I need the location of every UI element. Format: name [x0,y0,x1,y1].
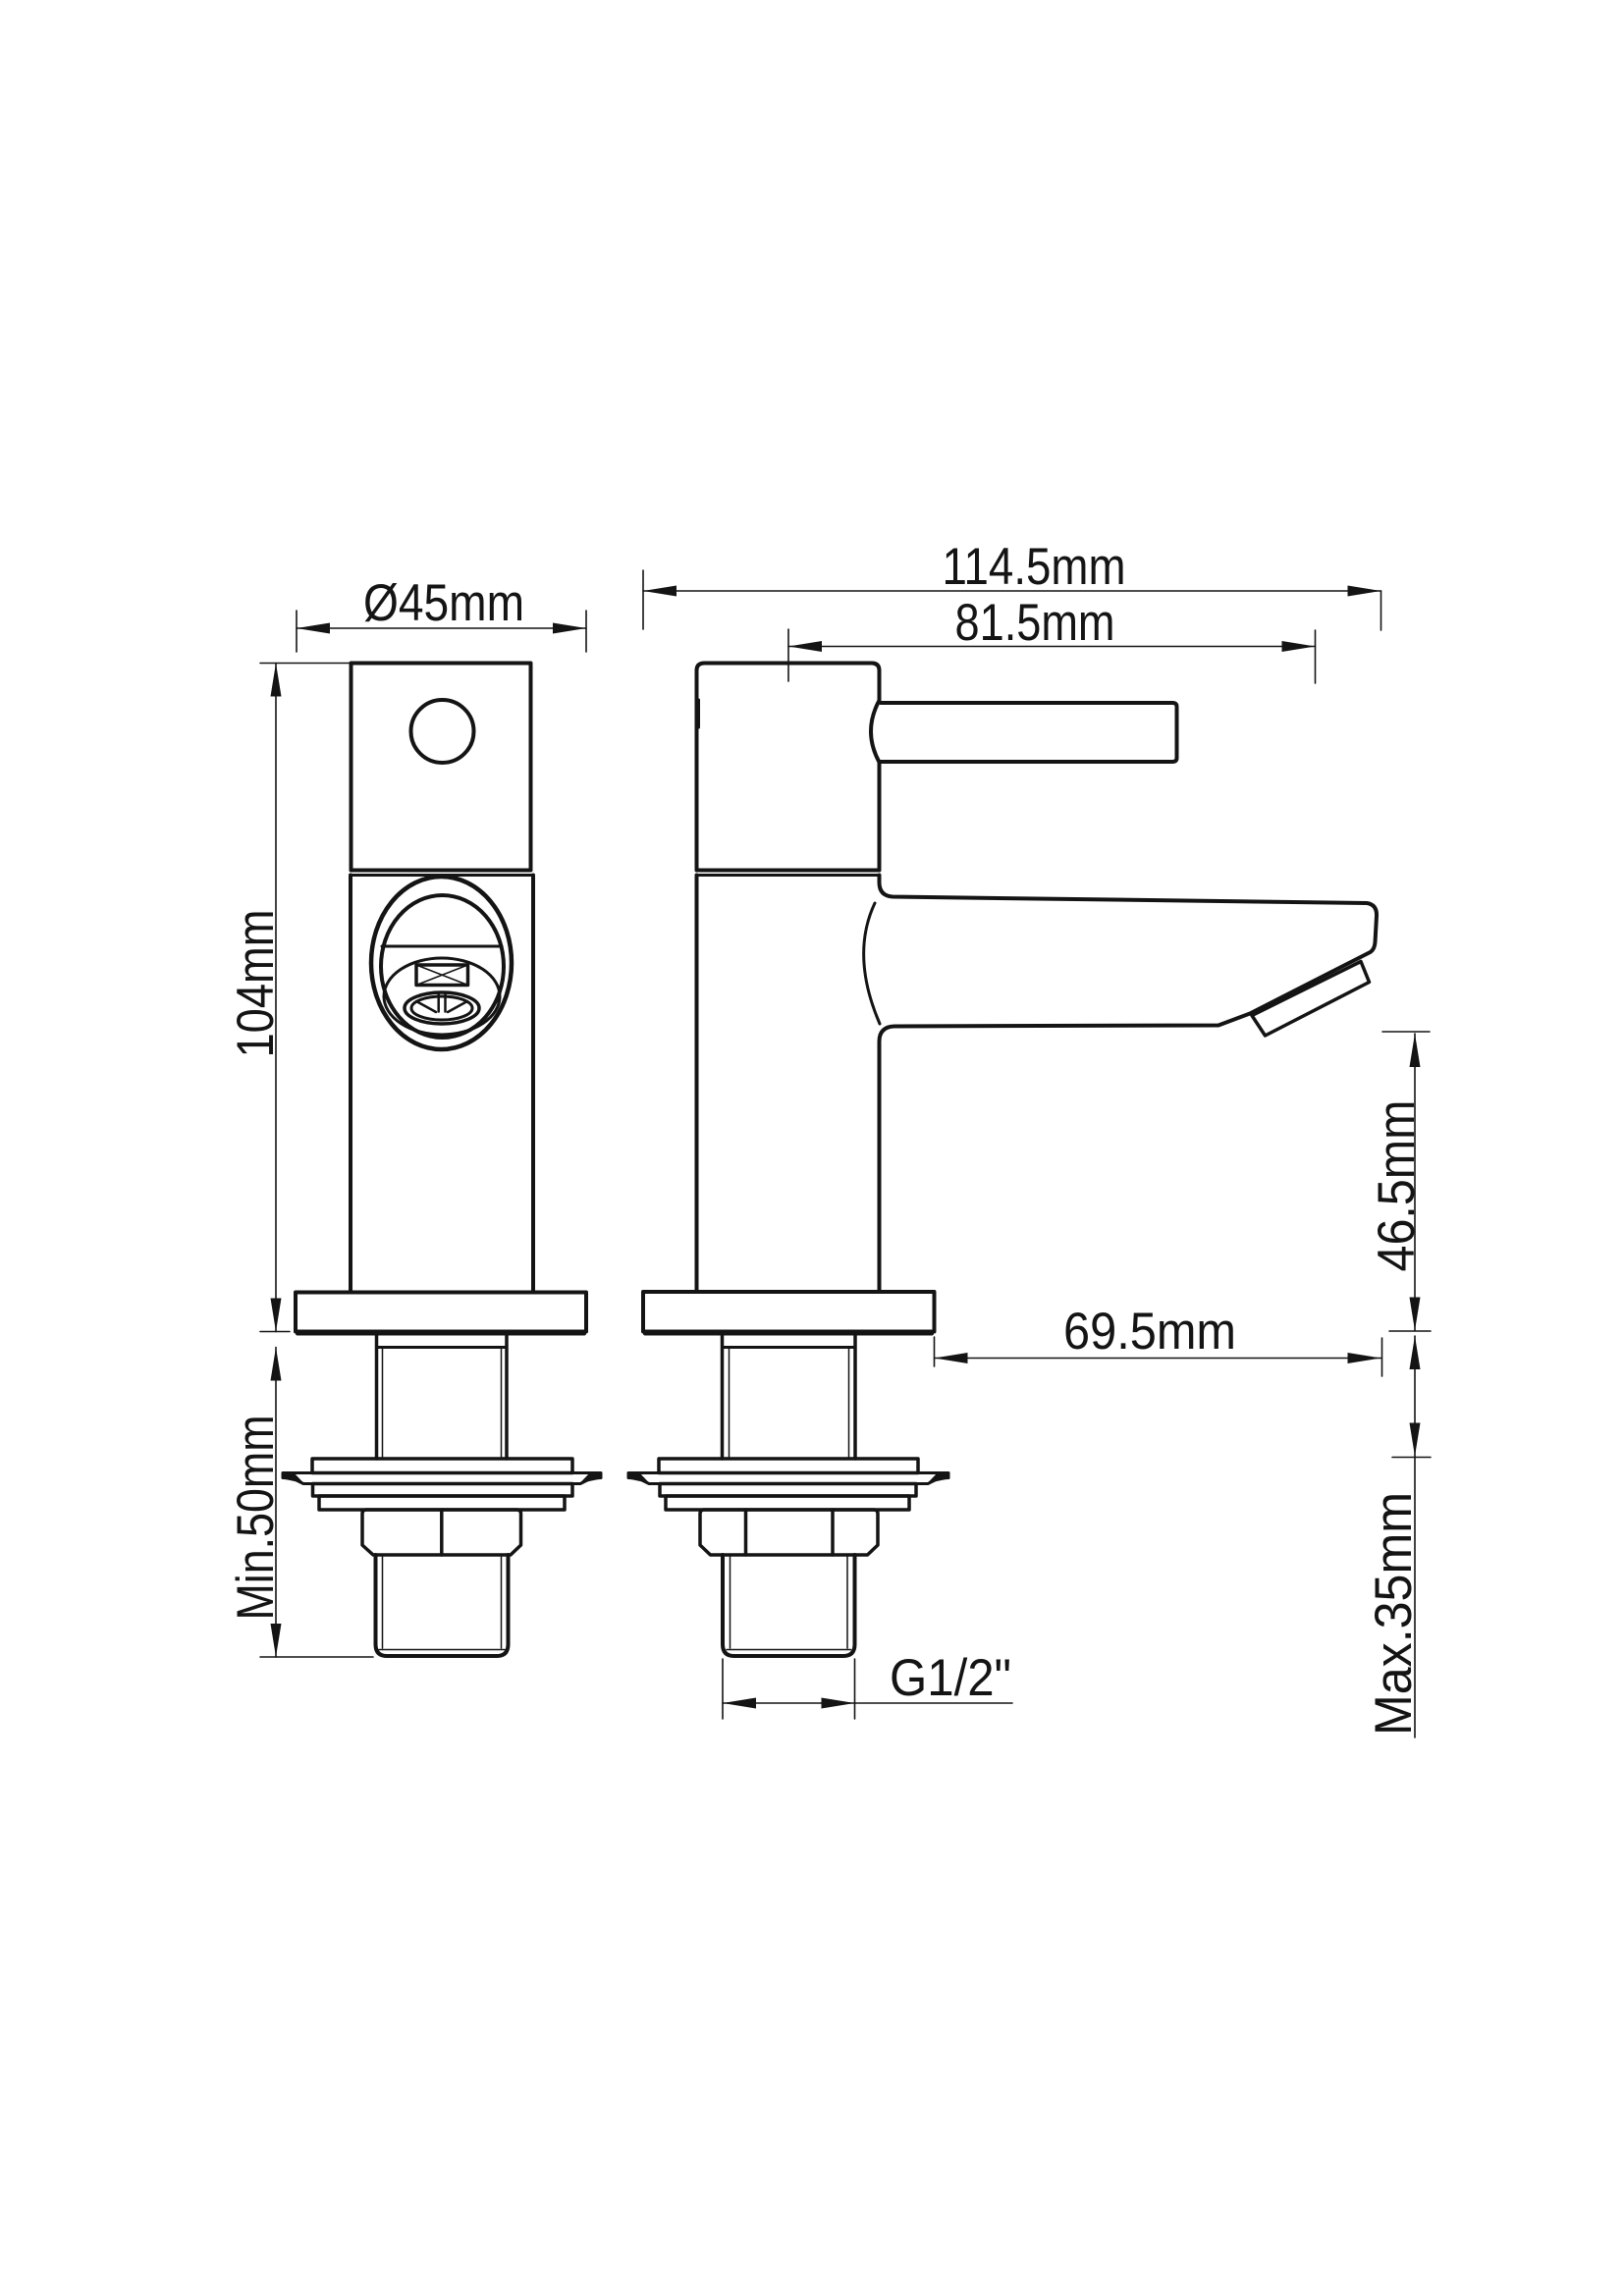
svg-text:Max.35mm: Max.35mm [1365,1492,1423,1735]
svg-text:G1/2": G1/2" [890,1649,1011,1707]
svg-text:81.5mm: 81.5mm [955,594,1115,652]
svg-text:Min.50mm: Min.50mm [227,1415,285,1621]
svg-text:114.5mm: 114.5mm [943,538,1126,596]
svg-text:104mm: 104mm [227,910,285,1058]
svg-text:46.5mm: 46.5mm [1368,1100,1426,1272]
svg-text:69.5mm: 69.5mm [1063,1303,1236,1361]
svg-text:Ø45mm: Ø45mm [363,574,524,632]
